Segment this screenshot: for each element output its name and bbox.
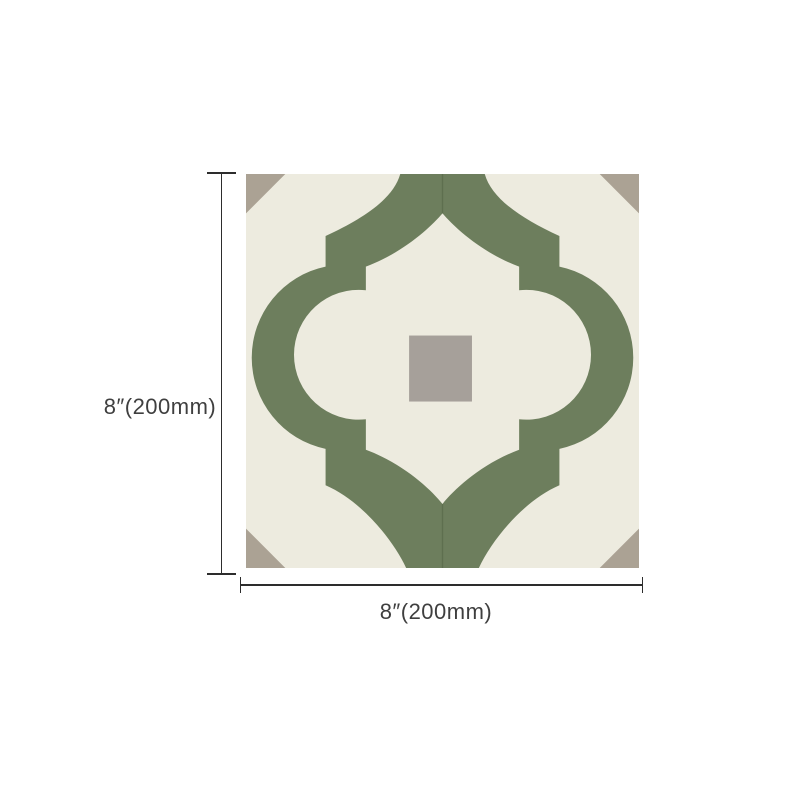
width-dimension-cap-left — [240, 577, 242, 593]
tile-dimension-figure: 8″(200mm) 8″(200mm) — [0, 0, 800, 800]
center-square — [409, 336, 472, 402]
height-dimension-line — [221, 173, 223, 574]
height-dimension-cap-bottom — [207, 573, 236, 575]
height-dimension-label: 8″(200mm) — [80, 394, 240, 420]
width-dimension-line — [240, 584, 643, 586]
width-dimension-label: 8″(200mm) — [336, 599, 536, 625]
width-dimension-cap-right — [642, 577, 644, 593]
tile-pattern-image — [246, 174, 639, 568]
height-dimension-cap-top — [207, 172, 236, 174]
